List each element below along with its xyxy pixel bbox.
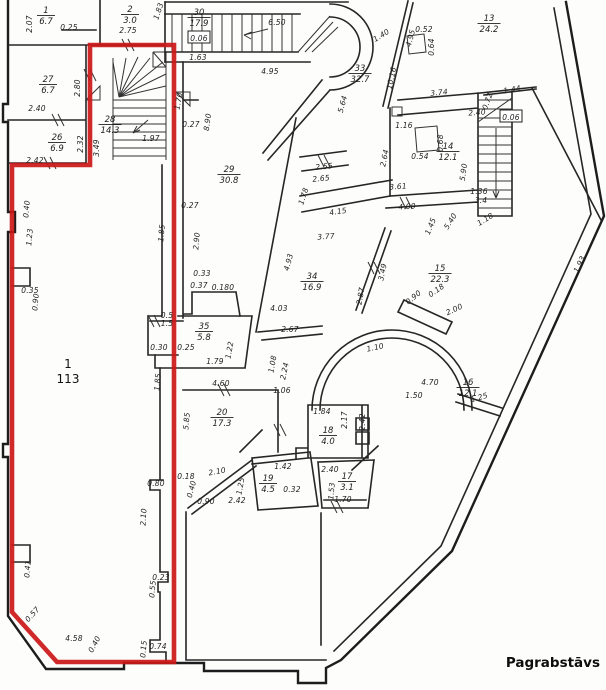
svg-text:13: 13: [484, 14, 495, 24]
room-label-18: 184.0: [319, 426, 337, 447]
dim-label: 0.90: [30, 293, 40, 311]
svg-text:3.74: 3.74: [430, 87, 448, 98]
dim-label: 0.90: [197, 497, 215, 506]
svg-text:2: 2: [127, 5, 132, 15]
svg-text:1.16: 1.16: [395, 121, 413, 130]
svg-text:0.90: 0.90: [197, 497, 215, 506]
dim-label: 1.78: [296, 186, 310, 205]
dim-label: 0.57: [23, 605, 41, 624]
dim-label: 4.58: [65, 634, 83, 643]
svg-text:2.24: 2.24: [278, 362, 290, 381]
svg-text:30.8: 30.8: [220, 176, 240, 186]
svg-text:2.75: 2.75: [119, 26, 137, 35]
svg-text:1.23: 1.23: [24, 228, 34, 246]
room-label-28: 2814.3: [99, 115, 122, 136]
svg-text:2.00: 2.00: [444, 302, 464, 318]
svg-text:15: 15: [435, 264, 446, 274]
room-label-34: 3416.9: [301, 272, 324, 293]
floor-title: Pagrabstāvs: [506, 655, 600, 671]
svg-text:2.55: 2.55: [315, 161, 333, 172]
svg-text:0.18: 0.18: [177, 472, 195, 481]
dim-label: 1.79: [206, 357, 224, 366]
dim-label: 1.16: [395, 121, 413, 130]
stair-direction-arrow: [244, 29, 268, 39]
svg-text:0.90: 0.90: [30, 293, 40, 311]
dim-label: 0.40: [185, 479, 198, 498]
dim-label: 5.64: [336, 94, 349, 113]
svg-text:2.65: 2.65: [312, 173, 330, 184]
dim-label: 10.16: [385, 66, 398, 90]
svg-text:4.60: 4.60: [212, 379, 230, 388]
svg-text:1.25: 1.25: [235, 477, 247, 496]
dim-label: 2.10: [208, 466, 227, 478]
dim-label: 2.80: [73, 79, 82, 97]
dim-label: 0.06: [500, 110, 522, 122]
dim-label: 4.15: [329, 206, 348, 217]
dim-label: 1.97: [142, 134, 160, 143]
stair-arrow: [133, 120, 148, 133]
svg-text:0.33: 0.33: [193, 269, 211, 278]
svg-text:1.42: 1.42: [274, 462, 292, 471]
room-label-35: 355.8: [195, 322, 213, 343]
room-label-17: 173.1: [338, 472, 356, 493]
dim-label: 0.37: [190, 281, 208, 290]
svg-text:3.61: 3.61: [389, 181, 407, 191]
dim-label: 2.07: [25, 15, 34, 33]
dim-label: 1.5: [161, 319, 174, 328]
svg-text:2.40: 2.40: [468, 107, 486, 117]
dim-label: 5.85: [181, 412, 191, 430]
dim-label: 3.49: [92, 139, 101, 157]
svg-text:33: 33: [355, 64, 366, 74]
svg-text:4.93: 4.93: [282, 252, 295, 271]
svg-text:0.06: 0.06: [190, 34, 208, 43]
svg-text:32.7: 32.7: [351, 75, 371, 85]
dim-label: 1.22: [224, 341, 236, 360]
dim-label: 1.85: [156, 224, 166, 242]
svg-text:1.78: 1.78: [296, 186, 310, 205]
dim-label: 5.40: [442, 211, 459, 231]
dim-label: 1.06: [273, 386, 291, 395]
svg-text:1.45: 1.45: [423, 216, 438, 236]
svg-text:1.93: 1.93: [572, 254, 588, 274]
dim-label: 2.67: [281, 325, 299, 334]
svg-text:0.68: 0.68: [436, 134, 445, 152]
dim-label: 1.84: [313, 407, 331, 416]
svg-text:2.40: 2.40: [28, 104, 46, 113]
dim-label: 1.44: [503, 84, 522, 96]
dim-label: 2.40: [28, 104, 46, 113]
svg-text:5.8: 5.8: [197, 333, 211, 343]
dim-label: 0.33: [193, 269, 211, 278]
svg-text:27: 27: [43, 75, 54, 85]
svg-text:2.32: 2.32: [76, 135, 85, 153]
svg-text:0.15: 0.15: [138, 640, 148, 658]
dim-label: 3.77: [317, 231, 335, 241]
svg-text:1: 1: [64, 357, 72, 371]
svg-text:0.32: 0.32: [283, 485, 301, 494]
svg-text:2.87: 2.87: [355, 287, 367, 306]
room-label-27: 276.7: [39, 75, 57, 96]
svg-text:2.07: 2.07: [25, 15, 34, 33]
left-wing-walls: [8, 0, 165, 562]
svg-text:1.50: 1.50: [405, 391, 423, 400]
svg-text:0.41: 0.41: [22, 560, 32, 578]
dim-label: 2.55: [315, 161, 333, 172]
room-label-2: 23.0: [121, 5, 139, 26]
dim-label: 0.54: [411, 152, 429, 161]
svg-text:5.85: 5.85: [181, 412, 191, 430]
svg-text:2.67: 2.67: [281, 325, 299, 334]
svg-text:14.3: 14.3: [101, 126, 120, 136]
room-label-19: 194.5: [259, 474, 277, 495]
dim-label: 0.40: [21, 200, 31, 218]
svg-text:1.44: 1.44: [503, 84, 522, 96]
dim-label: 0.27: [182, 120, 200, 129]
dim-label: 0.15: [138, 640, 148, 658]
svg-text:2.90: 2.90: [191, 232, 201, 250]
svg-text:10.16: 10.16: [385, 66, 398, 90]
svg-text:4.15: 4.15: [329, 206, 348, 217]
svg-text:1.70: 1.70: [334, 495, 352, 504]
dim-label: 4.95: [261, 67, 279, 76]
svg-text:6.7: 6.7: [41, 86, 55, 96]
dim-label: 1.83: [151, 1, 165, 20]
dim-label: 0.64: [427, 38, 436, 56]
svg-text:20: 20: [217, 408, 228, 418]
svg-text:30: 30: [194, 8, 205, 18]
svg-text:0.06: 0.06: [502, 113, 520, 122]
svg-text:6.9: 6.9: [50, 144, 64, 154]
dim-label: 4.00: [398, 201, 416, 211]
dim-label: 1.42: [274, 462, 292, 471]
svg-text:4.70: 4.70: [421, 378, 439, 387]
svg-text:1.5: 1.5: [161, 319, 174, 328]
dim-label: 0.27: [181, 201, 199, 210]
svg-text:0.40: 0.40: [21, 200, 31, 218]
svg-text:16: 16: [463, 378, 474, 388]
dim-label: 6.50: [268, 18, 286, 27]
svg-text:4.0: 4.0: [321, 437, 335, 447]
svg-text:6.7: 6.7: [39, 17, 53, 27]
svg-text:1.06: 1.06: [273, 386, 291, 395]
svg-text:3.4: 3.4: [475, 196, 488, 205]
svg-text:17.9: 17.9: [190, 19, 209, 29]
room-label-29: 2930.8: [218, 165, 241, 186]
svg-text:0.30: 0.30: [150, 343, 168, 352]
dim-label: 2.32: [76, 135, 85, 153]
dim-label: 2.24: [278, 362, 290, 381]
svg-text:29: 29: [224, 165, 235, 175]
svg-text:1.08: 1.08: [267, 355, 279, 374]
svg-text:2.42: 2.42: [358, 413, 367, 431]
room-label-13: 1324.2: [478, 14, 501, 35]
svg-text:0.52: 0.52: [415, 25, 433, 34]
dim-label: 1.40: [371, 27, 391, 44]
dim-label: 4.93: [282, 252, 295, 271]
svg-text:2.64: 2.64: [378, 149, 390, 168]
dim-label: 0.25: [177, 343, 195, 352]
dim-label: 2.17: [340, 411, 349, 429]
dim-label: 1.85: [152, 373, 162, 391]
svg-text:2.10: 2.10: [139, 508, 149, 526]
svg-text:5.64: 5.64: [336, 94, 349, 113]
dim-label: 4.60: [212, 379, 230, 388]
svg-text:0.27: 0.27: [181, 201, 199, 210]
dim-label: 3.4: [475, 196, 488, 205]
dim-label: 1.45: [423, 216, 438, 236]
bottom-hall-walls: [186, 512, 326, 660]
room-label-1: 1113: [57, 357, 80, 386]
dim-label: 8.90: [202, 113, 213, 132]
svg-text:0.80: 0.80: [147, 479, 165, 488]
svg-text:0.57: 0.57: [23, 605, 41, 624]
svg-text:0.37: 0.37: [190, 281, 208, 290]
svg-text:19: 19: [263, 474, 274, 484]
dim-label: 0.30: [150, 343, 168, 352]
svg-text:0.54: 0.54: [411, 152, 429, 161]
dim-label: 4.70: [421, 378, 439, 387]
dim-label: 3.61: [389, 181, 407, 191]
dim-label: 0.52: [415, 25, 433, 34]
dim-label: 0.180: [212, 283, 234, 292]
svg-text:6.50: 6.50: [268, 18, 286, 27]
svg-text:0.180: 0.180: [212, 283, 234, 292]
svg-text:1.83: 1.83: [151, 1, 165, 20]
svg-text:2.80: 2.80: [73, 79, 82, 97]
room-label-30: 3017.9: [188, 8, 211, 29]
svg-text:18: 18: [323, 426, 334, 436]
svg-text:113: 113: [57, 372, 80, 386]
dim-label: 0.80: [147, 479, 165, 488]
svg-text:35: 35: [199, 322, 210, 332]
svg-text:16.9: 16.9: [303, 283, 322, 293]
svg-text:1.36: 1.36: [470, 187, 488, 196]
svg-text:0.55: 0.55: [147, 580, 157, 598]
svg-text:5.40: 5.40: [442, 211, 459, 231]
dim-label: 2.65: [312, 173, 330, 184]
svg-text:0.25: 0.25: [60, 23, 78, 32]
svg-text:17: 17: [342, 472, 353, 482]
dim-label: 2.00: [444, 302, 464, 318]
room-label-1: 16.7: [37, 6, 55, 27]
svg-text:26: 26: [52, 133, 63, 143]
svg-text:34: 34: [307, 272, 318, 282]
dim-label: 3.74: [430, 87, 448, 98]
dim-label: 1.10: [366, 341, 385, 353]
floorplan-page: 111316.723.0276.7266.93017.92814.32930.8…: [0, 0, 606, 690]
svg-text:1.22: 1.22: [224, 341, 236, 360]
svg-text:1.10: 1.10: [366, 341, 385, 353]
dim-label: 5.90: [458, 163, 469, 182]
dim-label: 2.40: [321, 465, 339, 474]
svg-text:1.84: 1.84: [313, 407, 331, 416]
dim-label: 0.41: [22, 560, 32, 578]
dim-label: 1.70: [334, 495, 352, 504]
svg-text:0.27: 0.27: [182, 120, 200, 129]
svg-text:2.17: 2.17: [340, 411, 349, 429]
dim-label: 2.90: [191, 232, 201, 250]
svg-text:4.00: 4.00: [398, 201, 416, 211]
svg-text:1.85: 1.85: [152, 373, 162, 391]
dim-label: 0.18: [177, 472, 195, 481]
svg-text:24.2: 24.2: [480, 25, 499, 35]
svg-text:28: 28: [105, 115, 116, 125]
dim-label: 1.93: [572, 254, 588, 274]
svg-text:0.64: 0.64: [427, 38, 436, 56]
svg-text:4.58: 4.58: [65, 634, 83, 643]
dim-label: 0.74: [149, 642, 167, 651]
dim-label: 2.64: [378, 149, 390, 168]
svg-text:0.40: 0.40: [185, 479, 198, 498]
svg-text:1.97: 1.97: [142, 134, 160, 143]
svg-text:3.49: 3.49: [92, 139, 101, 157]
svg-text:3.0: 3.0: [123, 16, 137, 26]
svg-text:17.3: 17.3: [213, 419, 232, 429]
dim-label: 1.36: [470, 187, 488, 196]
dim-label: 2.75: [119, 26, 137, 35]
svg-text:1.63: 1.63: [189, 53, 207, 62]
svg-text:0.40: 0.40: [86, 634, 102, 654]
dim-label: 0.40: [86, 634, 102, 654]
dim-label: 2.10: [139, 508, 149, 526]
svg-text:3.77: 3.77: [317, 231, 335, 241]
dim-label: 2.87: [355, 287, 367, 306]
svg-text:2.42: 2.42: [26, 156, 44, 165]
svg-text:2.40: 2.40: [321, 465, 339, 474]
room-label-20: 2017.3: [211, 408, 234, 429]
dim-label: 4.03: [270, 304, 288, 313]
dim-label: 0.32: [283, 485, 301, 494]
svg-text:4.5: 4.5: [261, 485, 275, 495]
svg-text:8.90: 8.90: [202, 113, 213, 132]
svg-text:1.79: 1.79: [206, 357, 224, 366]
dim-label: 1.23: [24, 228, 34, 246]
svg-text:0.74: 0.74: [149, 642, 167, 651]
room-label-26: 266.9: [48, 133, 66, 154]
room35-room20-walls: [150, 316, 278, 514]
dim-label: 1.63: [189, 53, 207, 62]
floorplan-drawing: 111316.723.0276.7266.93017.92814.32930.8…: [0, 0, 606, 690]
svg-text:4.03: 4.03: [270, 304, 288, 313]
dim-label: 1.08: [267, 355, 279, 374]
svg-text:0.25: 0.25: [177, 343, 195, 352]
dim-label: 2.40: [468, 107, 486, 117]
dim-label: 2.42: [26, 156, 44, 165]
dim-label: 0.06: [188, 31, 210, 43]
room29-walls: [183, 62, 296, 332]
dim-label: 0.55: [147, 580, 157, 598]
dim-label: 1.25: [235, 477, 247, 496]
svg-text:1.40: 1.40: [371, 27, 391, 44]
svg-text:2.10: 2.10: [208, 466, 227, 478]
svg-text:12.1: 12.1: [439, 153, 458, 163]
dim-label: 0.25: [60, 23, 78, 32]
svg-text:1: 1: [43, 6, 48, 16]
svg-text:5.90: 5.90: [458, 163, 469, 182]
dim-label: 2.42: [358, 413, 367, 431]
dim-label: 2.42: [228, 496, 246, 505]
dim-label: 1.50: [405, 391, 423, 400]
svg-text:1.85: 1.85: [156, 224, 166, 242]
dim-label: 0.68: [436, 134, 445, 152]
svg-text:2.42: 2.42: [228, 496, 246, 505]
svg-text:3.1: 3.1: [340, 483, 354, 493]
svg-text:4.95: 4.95: [261, 67, 279, 76]
